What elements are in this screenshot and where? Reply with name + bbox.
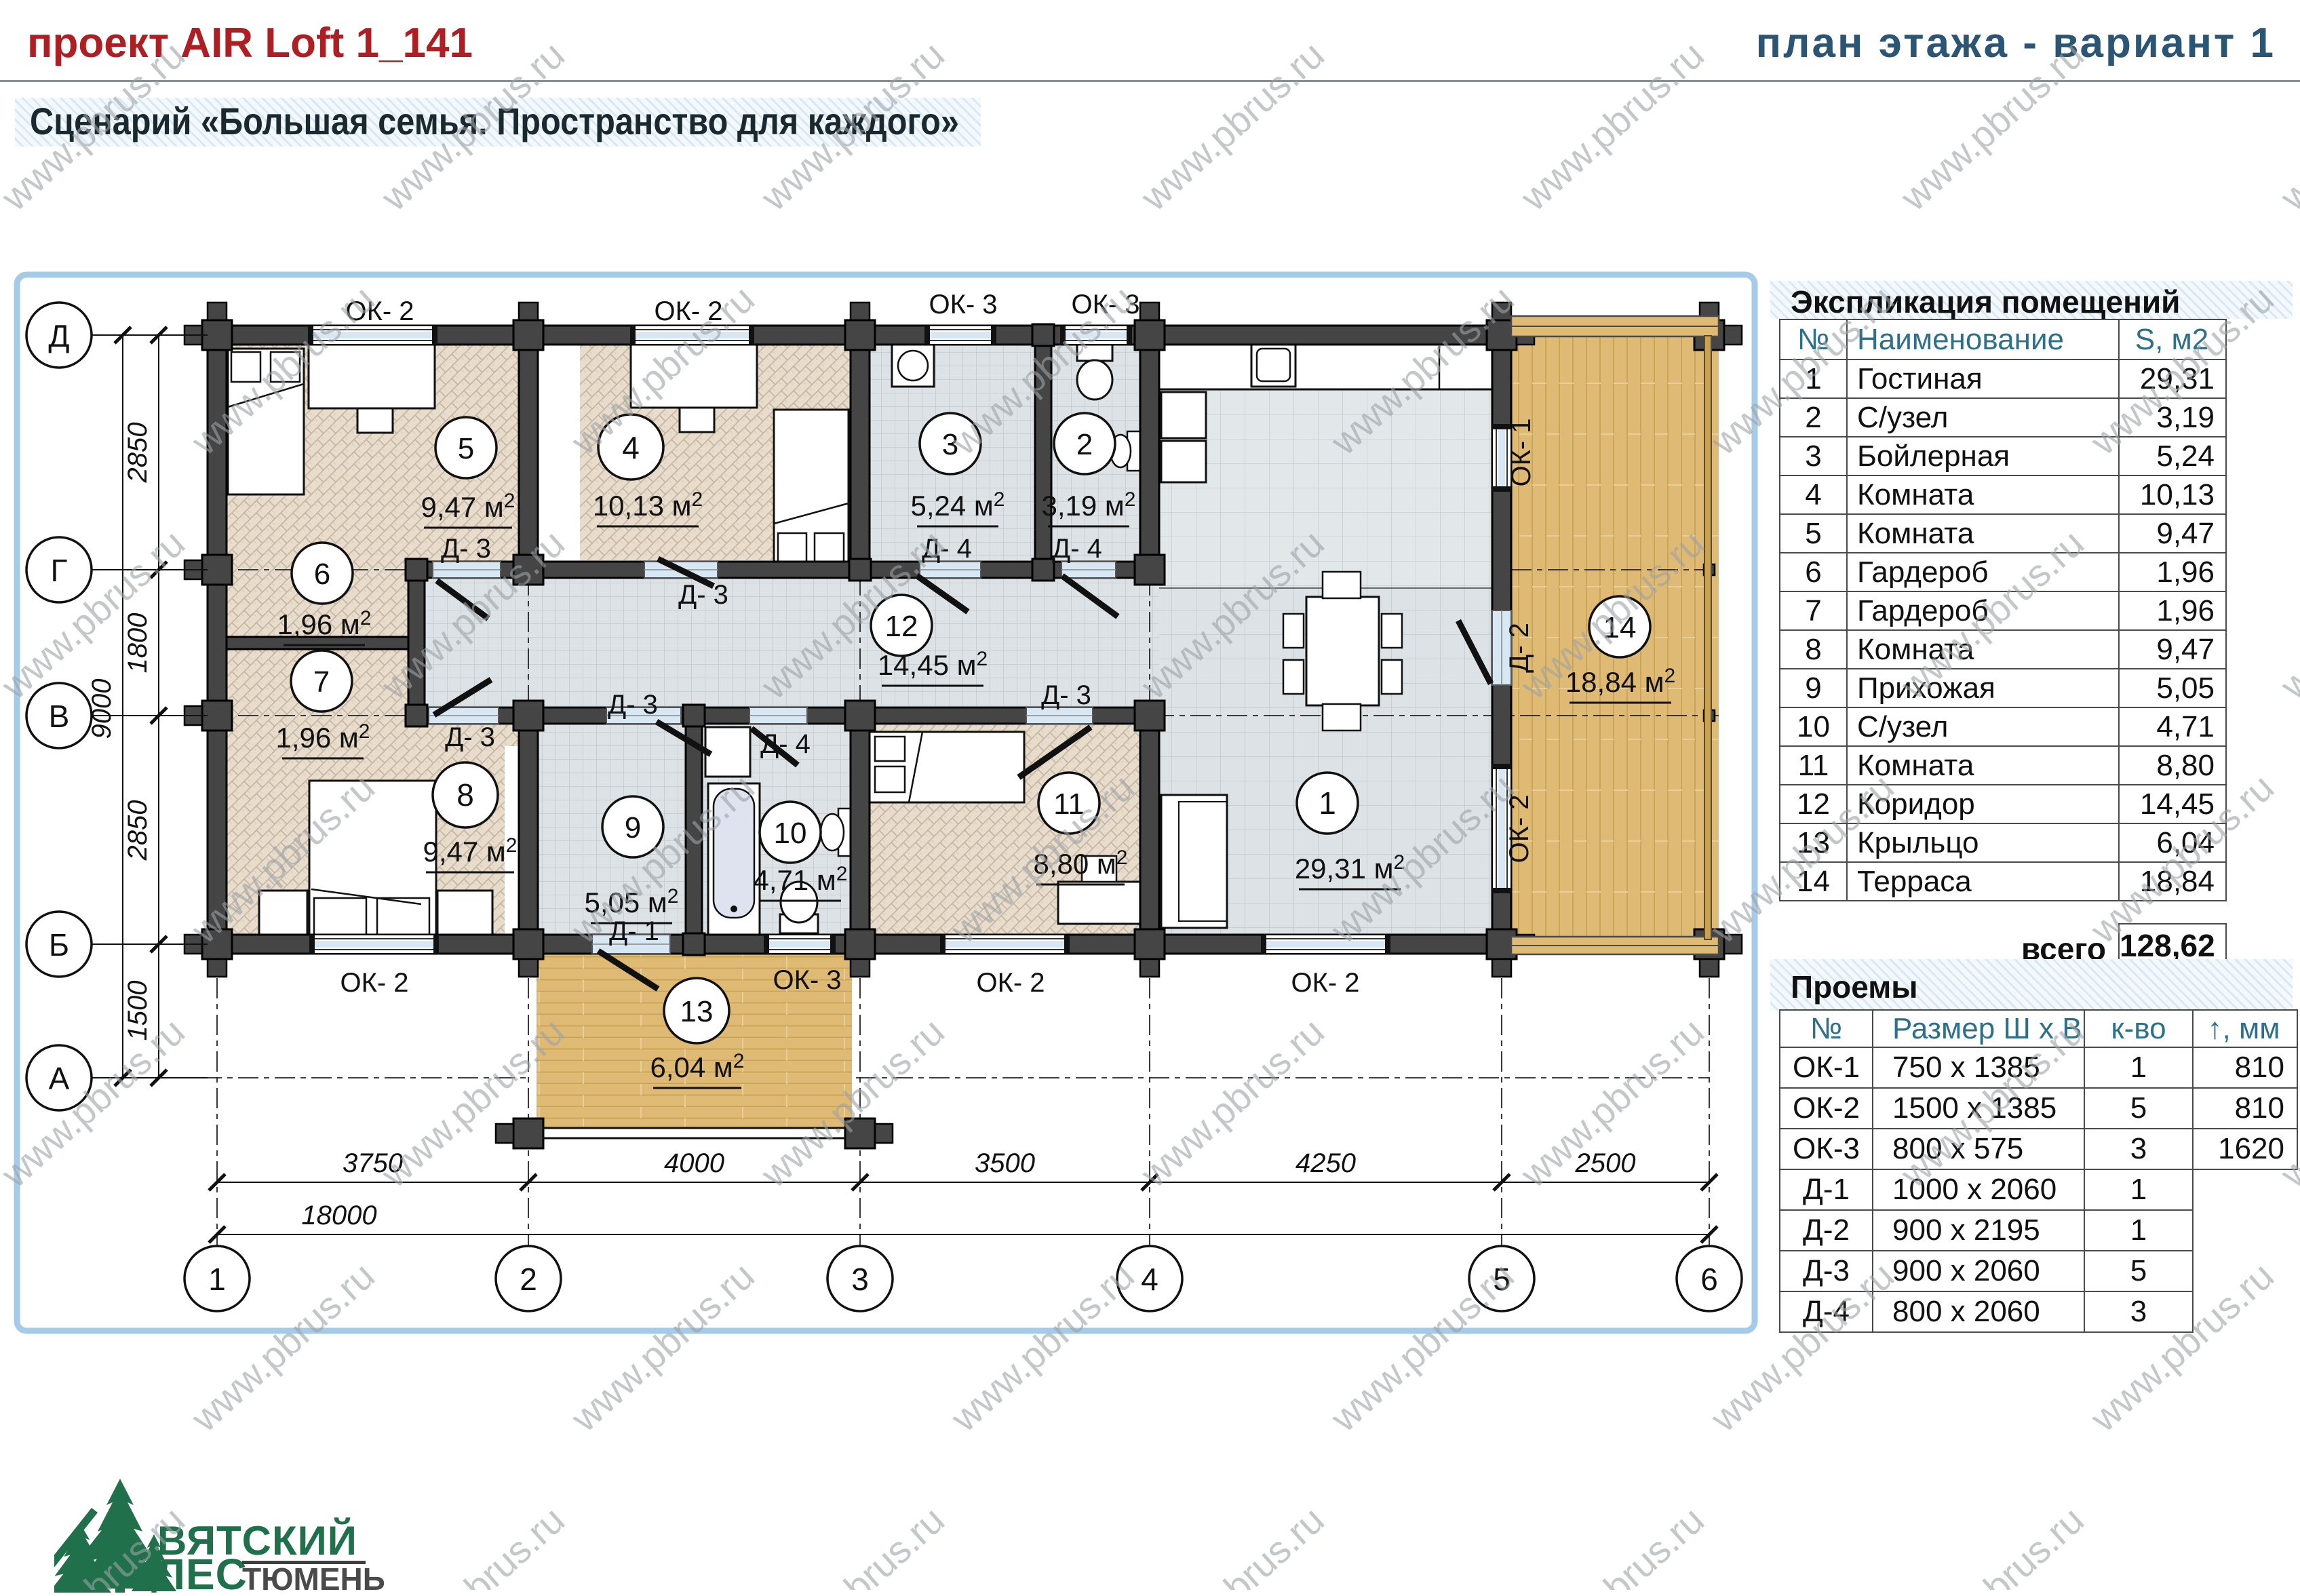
svg-text:Д- 4: Д- 4 xyxy=(1052,534,1102,564)
svg-text:Д: Д xyxy=(48,318,69,353)
svg-text:9,47 м2: 9,47 м2 xyxy=(421,490,515,523)
svg-text:Д- 3: Д- 3 xyxy=(445,722,495,752)
svg-text:2: 2 xyxy=(520,1262,537,1297)
svg-text:Д- 4: Д- 4 xyxy=(922,534,972,564)
svg-text:Д- 1: Д- 1 xyxy=(609,916,659,946)
svg-text:18,84 м2: 18,84 м2 xyxy=(1565,665,1675,698)
svg-text:13: 13 xyxy=(680,995,714,1028)
svg-text:Д- 2: Д- 2 xyxy=(1504,623,1534,673)
svg-text:1: 1 xyxy=(208,1262,226,1297)
svg-text:3750: 3750 xyxy=(343,1148,403,1178)
svg-text:В: В xyxy=(49,699,70,734)
svg-text:3: 3 xyxy=(851,1262,869,1297)
svg-text:ОК- 2: ОК- 2 xyxy=(340,968,408,998)
svg-text:ОК- 2: ОК- 2 xyxy=(1504,794,1534,863)
svg-text:Б: Б xyxy=(49,927,69,962)
svg-text:6: 6 xyxy=(314,558,330,591)
svg-text:Д- 3: Д- 3 xyxy=(441,534,491,564)
svg-text:14: 14 xyxy=(1603,611,1637,644)
svg-text:2: 2 xyxy=(1076,428,1093,461)
svg-text:4: 4 xyxy=(622,430,640,465)
svg-text:2500: 2500 xyxy=(1575,1148,1636,1178)
svg-text:Д- 3: Д- 3 xyxy=(1041,680,1091,710)
svg-text:1,96 м2: 1,96 м2 xyxy=(277,607,372,640)
svg-text:Д- 4: Д- 4 xyxy=(760,729,811,759)
svg-text:8: 8 xyxy=(456,777,474,813)
svg-text:1500: 1500 xyxy=(123,981,153,1041)
svg-text:10,13 м2: 10,13 м2 xyxy=(593,488,703,522)
svg-text:ОК- 2: ОК- 2 xyxy=(345,296,414,326)
svg-text:18000: 18000 xyxy=(301,1201,376,1230)
svg-text:1800: 1800 xyxy=(123,613,153,674)
svg-text:ОК- 2: ОК- 2 xyxy=(976,968,1045,998)
svg-text:7: 7 xyxy=(313,665,330,699)
svg-text:ОК- 3: ОК- 3 xyxy=(1071,290,1139,319)
svg-text:5,05 м2: 5,05 м2 xyxy=(585,885,679,918)
svg-text:6: 6 xyxy=(1700,1262,1718,1297)
svg-text:9,47 м2: 9,47 м2 xyxy=(423,834,518,868)
svg-text:4000: 4000 xyxy=(664,1148,724,1178)
svg-text:12: 12 xyxy=(885,610,918,643)
svg-text:1,96 м2: 1,96 м2 xyxy=(276,720,370,754)
svg-text:2850: 2850 xyxy=(123,423,153,484)
svg-text:3: 3 xyxy=(942,428,958,461)
svg-text:А: А xyxy=(49,1061,70,1096)
svg-text:4250: 4250 xyxy=(1295,1148,1356,1178)
svg-text:Д- 3: Д- 3 xyxy=(678,580,728,610)
svg-text:5,24 м2: 5,24 м2 xyxy=(911,488,1005,522)
svg-text:1: 1 xyxy=(1319,785,1336,821)
svg-text:ОК- 1: ОК- 1 xyxy=(1506,418,1536,486)
svg-text:ТЮМЕНЬ: ТЮМЕНЬ xyxy=(242,1561,385,1593)
svg-text:Д- 3: Д- 3 xyxy=(608,690,658,720)
svg-text:ОК- 3: ОК- 3 xyxy=(773,965,841,995)
svg-text:Г: Г xyxy=(51,553,68,588)
svg-text:5: 5 xyxy=(1493,1262,1510,1297)
svg-text:4,71 м2: 4,71 м2 xyxy=(754,863,848,896)
svg-text:2850: 2850 xyxy=(123,800,153,861)
svg-text:ЛЕС: ЛЕС xyxy=(155,1550,248,1593)
svg-text:3500: 3500 xyxy=(975,1148,1035,1178)
svg-text:8,80 м2: 8,80 м2 xyxy=(1034,846,1128,880)
svg-text:14,45 м2: 14,45 м2 xyxy=(878,648,988,681)
svg-text:5: 5 xyxy=(458,432,474,465)
svg-text:9: 9 xyxy=(625,811,641,844)
svg-text:29,31 м2: 29,31 м2 xyxy=(1295,851,1405,884)
svg-text:3,19 м2: 3,19 м2 xyxy=(1042,488,1136,522)
svg-text:ОК- 3: ОК- 3 xyxy=(929,290,997,319)
svg-text:ОК- 2: ОК- 2 xyxy=(654,296,722,326)
svg-text:ОК- 2: ОК- 2 xyxy=(1291,968,1359,998)
svg-text:6,04 м2: 6,04 м2 xyxy=(650,1050,745,1083)
svg-text:10: 10 xyxy=(774,817,807,850)
svg-text:4: 4 xyxy=(1141,1262,1158,1297)
svg-text:11: 11 xyxy=(1053,787,1085,821)
